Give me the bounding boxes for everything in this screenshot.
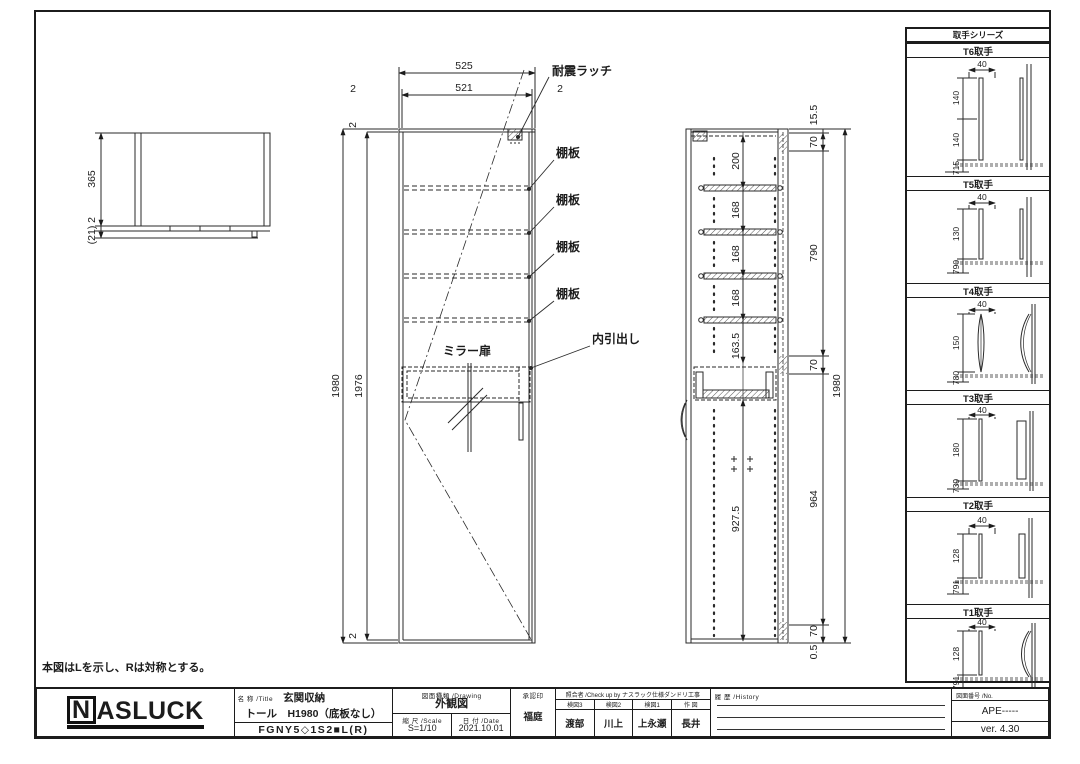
handle-length-dim: 128 xyxy=(951,647,961,661)
front-view-dims: 525 521 2 2 1980 1976 2 2 耐震ラッチ 棚板 棚板 棚板… xyxy=(330,60,640,639)
handle-length-dim: 180 xyxy=(951,443,961,457)
check-cell: 照合者 /Check up by ナスラック仕様ダンドリ工事 検図3 渡部 検図… xyxy=(556,689,711,736)
handle-height-dim: 715 xyxy=(951,161,961,175)
handle-diagram-t5: 40 130 790 xyxy=(907,191,1049,283)
plan-view-dims: 365 2 (21) xyxy=(86,170,98,244)
check-col: 検図2 川上 xyxy=(594,700,633,736)
sheet-border xyxy=(35,11,1050,738)
section-inner-dim: 163.5 xyxy=(730,333,742,359)
plan-view xyxy=(95,133,270,238)
handle-width-dim: 40 xyxy=(977,515,987,525)
shelf-label: 棚板 xyxy=(556,286,581,301)
shelf-label: 棚板 xyxy=(556,145,581,160)
section-view xyxy=(681,129,851,643)
front-gap-right-dim: 2 xyxy=(557,83,563,95)
inner-drawer-label: 内引出し xyxy=(592,331,640,346)
section-right-dim: 0.5 xyxy=(808,645,820,660)
handle-width-dim: 40 xyxy=(977,405,987,415)
section-inner-dim: 168 xyxy=(730,245,742,263)
logo-rest: ASLUCK xyxy=(97,699,204,724)
check-col: 検図3 渡部 xyxy=(556,700,594,736)
plan-depth-dim: 365 xyxy=(86,170,98,188)
history-header: 履 歴 /History xyxy=(715,691,760,701)
scale-header: 縮 尺 /Scale xyxy=(393,715,451,725)
section-inner-dim: 168 xyxy=(730,289,742,307)
plan-panel-dim: 2 xyxy=(86,217,98,223)
section-right-dim: 70 xyxy=(808,359,820,371)
handle-diagram-t3: 40 180 739 xyxy=(907,405,1049,497)
handle-series-panel: 取手シリーズ T6取手 40 140 140 xyxy=(905,27,1051,683)
approval-cell: 承認印 福庭 xyxy=(511,689,556,736)
handle-block-t1: T1取手 40 128 791 xyxy=(907,604,1049,697)
section-inner-dim: 200 xyxy=(730,152,742,170)
product-category: 玄関収納 xyxy=(283,690,325,705)
drawing-number-cell: 図面番号 /No. APE----- ver. 4.30 xyxy=(952,689,1048,736)
section-right-dim: 790 xyxy=(808,244,820,262)
title-cell: 名 称 /Title 玄関収納 トール H1980（底板なし） FGNY5◇1S… xyxy=(235,689,394,736)
section-right-dim: 15.5 xyxy=(808,105,820,126)
section-right-dim: 70 xyxy=(808,136,820,148)
drawing-number-header: 図面番号 /No. xyxy=(952,689,1048,700)
check-name: 渡部 xyxy=(556,710,594,736)
product-name: トール H1980（底板なし） xyxy=(235,705,393,723)
handle-height-dim: 791 xyxy=(951,580,961,594)
drawing-type-cell: 図面種類 /Drawing 外観図 縮 尺 /Scale S=1/10 日 付 … xyxy=(393,689,511,736)
drawing-type-header: 図面種類 /Drawing xyxy=(393,690,510,700)
handle-length-dim: 140 xyxy=(951,91,961,105)
handle-length-dim: 150 xyxy=(951,336,961,350)
shelf-label: 棚板 xyxy=(556,192,581,207)
handle-name: T3取手 xyxy=(907,390,1049,405)
plan-toe-dim: (21) xyxy=(86,226,98,245)
approval-header: 承認印 xyxy=(511,690,555,700)
handle-width-dim: 40 xyxy=(977,619,987,627)
handle-block-t2: T2取手 40 128 791 xyxy=(907,497,1049,604)
handle-width-dim: 40 xyxy=(977,192,987,202)
front-gap-left-dim: 2 xyxy=(350,83,356,95)
handle-block-t5: T5取手 40 130 790 xyxy=(907,176,1049,283)
history-cell: 履 歴 /History xyxy=(711,689,953,736)
title-header: 名 称 /Title xyxy=(238,693,273,703)
section-right-dim: 70 xyxy=(808,625,820,637)
drawing-version: ver. 4.30 xyxy=(952,721,1048,736)
handle-series-title: 取手シリーズ xyxy=(907,29,1049,43)
check-role: 作 図 xyxy=(672,700,710,710)
logo-n: N xyxy=(67,696,96,725)
handle-length-dim: 128 xyxy=(951,549,961,563)
handle-block-t4: T4取手 40 150 780 xyxy=(907,283,1049,390)
handle-block-t3: T3取手 40 180 739 xyxy=(907,390,1049,497)
approval-name: 福庭 xyxy=(524,709,543,723)
front-width-inner-dim: 521 xyxy=(455,82,473,94)
handle-diagram-t6: 40 140 140 715 xyxy=(907,58,1049,176)
handle-diagram-t2: 40 128 791 xyxy=(907,512,1049,604)
front-height-inner-dim: 1976 xyxy=(353,374,365,398)
logo-cell: NASLUCK xyxy=(37,689,235,736)
title-block: NASLUCK 名 称 /Title 玄関収納 トール H1980（底板なし） … xyxy=(35,687,1050,738)
section-total-dim: 1980 xyxy=(831,374,843,398)
handle-width-dim: 40 xyxy=(977,299,987,309)
section-inner-dim: 927.5 xyxy=(730,506,742,532)
handle-name: T4取手 xyxy=(907,283,1049,298)
mirror-note: 本図はLを示し、Rは対称とする。 xyxy=(42,659,210,675)
handle-block-t6: T6取手 40 140 140 715 xyxy=(907,43,1049,176)
front-top-thickness-dim: 2 xyxy=(347,122,359,128)
handle-name: T1取手 xyxy=(907,604,1049,619)
section-inner-dim: 168 xyxy=(730,201,742,219)
history-line xyxy=(717,729,946,730)
nasluck-logo: NASLUCK xyxy=(67,696,204,730)
handle-length-dim: 140 xyxy=(951,133,961,147)
front-width-outer-dim: 525 xyxy=(455,60,473,72)
mirror-door-label: ミラー扉 xyxy=(443,343,491,358)
front-height-outer-dim: 1980 xyxy=(330,374,342,398)
latch-label: 耐震ラッチ xyxy=(552,63,612,78)
handle-name: T6取手 xyxy=(907,43,1049,58)
drawing-sheet: 365 2 (21) xyxy=(0,0,1080,764)
handle-width-dim: 40 xyxy=(977,59,987,69)
drawing-number: APE----- xyxy=(952,700,1048,721)
check-name: 長井 xyxy=(672,710,710,736)
section-right-dim: 964 xyxy=(808,490,820,508)
check-name: 川上 xyxy=(595,710,633,736)
history-line xyxy=(717,717,946,718)
product-code: FGNY5◇1S2■L(R) xyxy=(235,723,393,736)
handle-name: T2取手 xyxy=(907,497,1049,512)
handle-height-dim: 790 xyxy=(951,260,961,274)
handle-height-dim: 780 xyxy=(951,371,961,385)
check-role: 検図1 xyxy=(633,700,671,710)
handle-name: T5取手 xyxy=(907,176,1049,191)
handle-length-dim: 130 xyxy=(951,227,961,241)
handle-height-dim: 739 xyxy=(951,479,961,493)
shelf-label: 棚板 xyxy=(556,239,581,254)
check-col: 検図1 上永瀬 xyxy=(632,700,671,736)
front-bottom-thickness-dim: 2 xyxy=(347,633,359,639)
check-col: 作 図 長井 xyxy=(671,700,710,736)
handle-diagram-t1: 40 128 791 xyxy=(907,619,1049,697)
check-role: 検図3 xyxy=(556,700,594,710)
check-name: 上永瀬 xyxy=(633,710,671,736)
history-line xyxy=(717,705,946,706)
check-role: 検図2 xyxy=(595,700,633,710)
date-header: 日 付 /Date xyxy=(452,715,510,725)
check-header: 照合者 /Check up by ナスラック仕様ダンドリ工事 xyxy=(556,689,710,700)
handle-diagram-t4: 40 150 780 xyxy=(907,298,1049,390)
